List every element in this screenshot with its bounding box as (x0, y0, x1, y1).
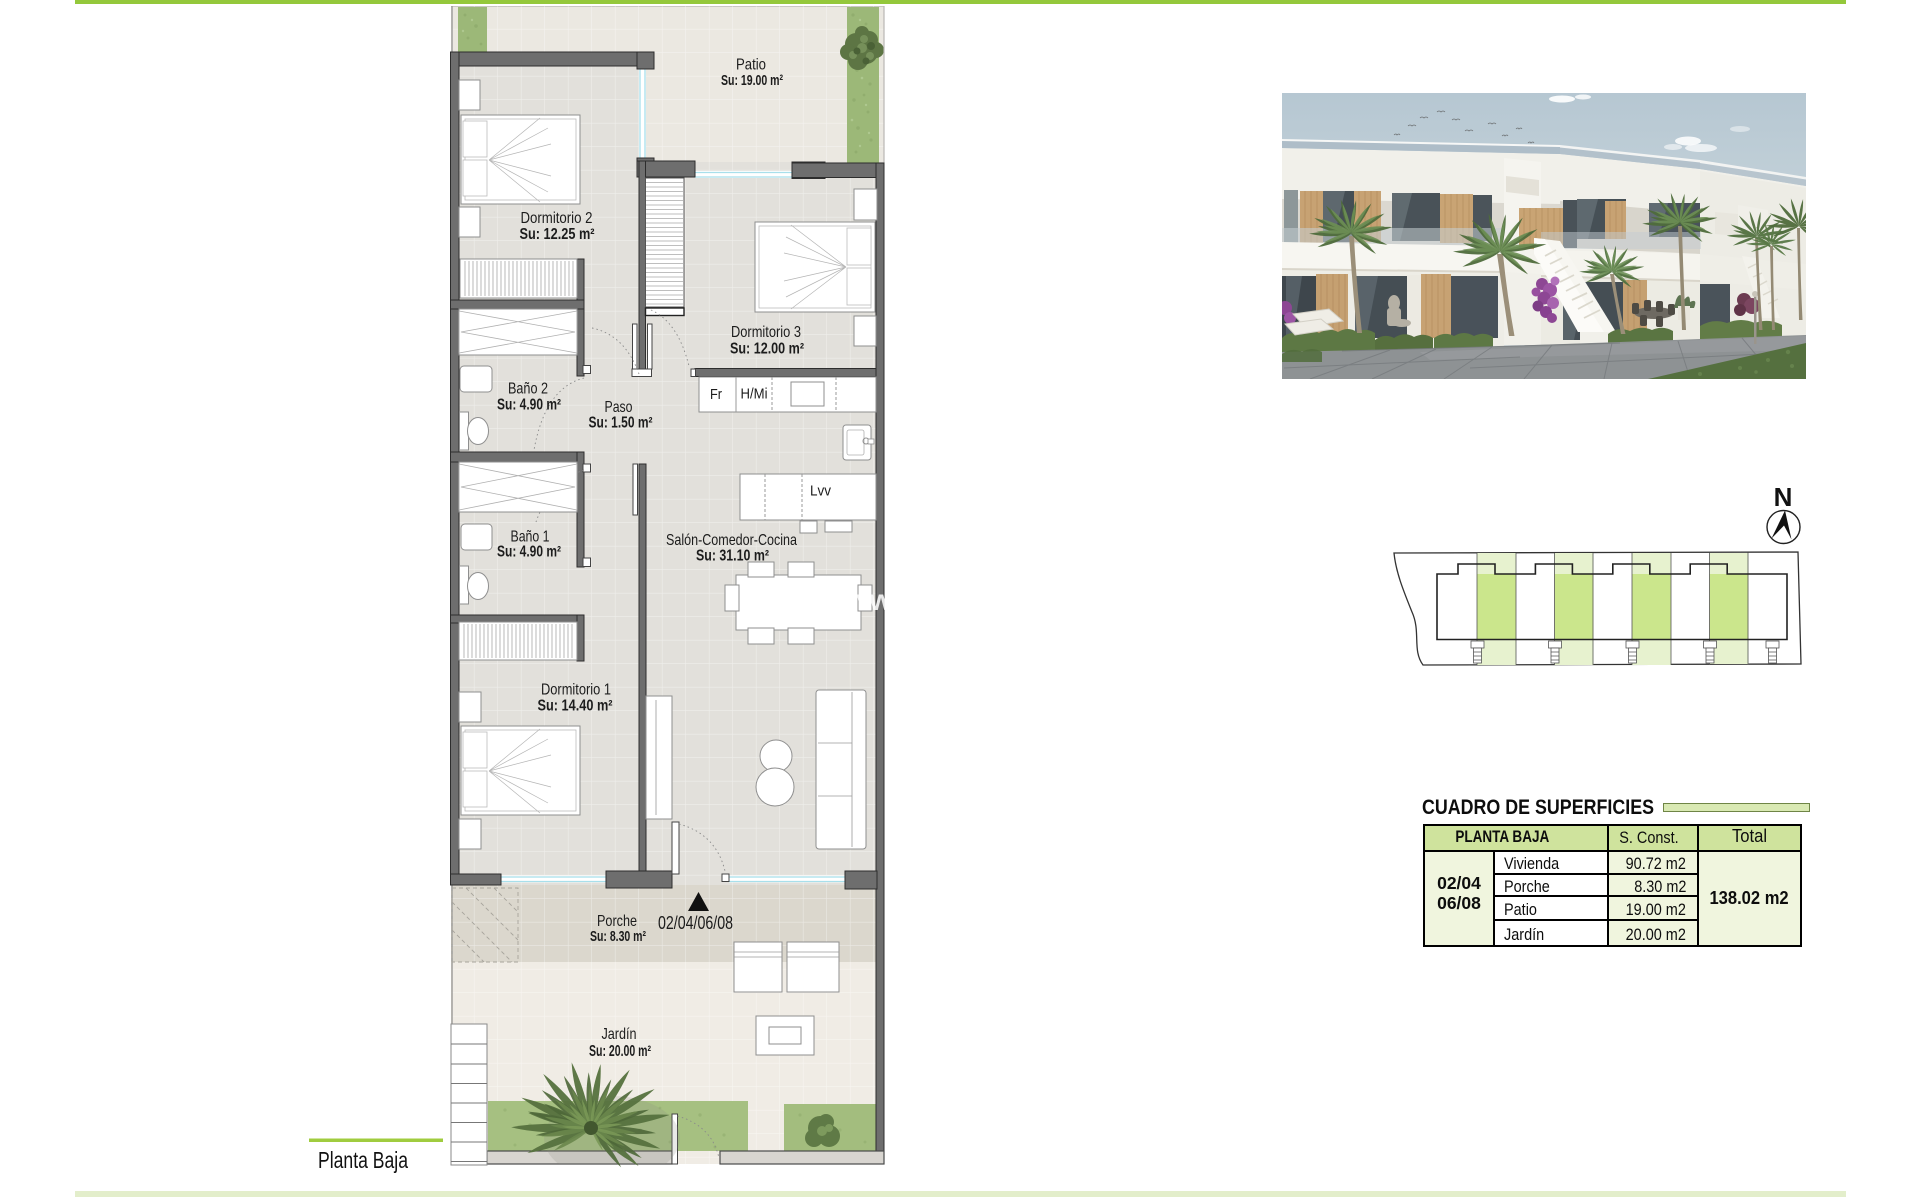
svg-text:Dormitorio 1: Dormitorio 1 (541, 682, 611, 699)
svg-text:Patio: Patio (736, 57, 766, 74)
svg-text:Su: 20.00 m²: Su: 20.00 m² (589, 1043, 651, 1060)
svg-text:Jardín: Jardín (602, 1026, 637, 1043)
svg-text:Su: 12.00 m²: Su: 12.00 m² (730, 341, 804, 358)
svg-text:Su: 19.00 m²: Su: 19.00 m² (721, 72, 783, 89)
svg-text:Su: 12.25 m²: Su: 12.25 m² (520, 226, 595, 243)
svg-text:H/Mi: H/Mi (741, 386, 768, 403)
svg-text:Su: 31.10 m²: Su: 31.10 m² (696, 548, 769, 565)
svg-text:Su: 14.40 m²: Su: 14.40 m² (538, 698, 613, 715)
svg-text:Planta Baja: Planta Baja (318, 1147, 408, 1173)
svg-text:Su: 4.90 m²: Su: 4.90 m² (497, 544, 561, 561)
svg-text:Paso: Paso (605, 399, 633, 416)
svg-text:Dormitorio 3: Dormitorio 3 (731, 324, 801, 341)
svg-text:Baño 2: Baño 2 (508, 381, 548, 398)
svg-text:www: www (845, 584, 917, 617)
svg-text:Su: 8.30 m²: Su: 8.30 m² (590, 929, 646, 945)
svg-text:Su: 1.50 m²: Su: 1.50 m² (589, 415, 653, 432)
svg-text:02/04/06/08: 02/04/06/08 (658, 912, 733, 933)
svg-text:N: N (1774, 482, 1793, 512)
svg-text:Su: 4.90 m²: Su: 4.90 m² (497, 397, 561, 414)
svg-text:Fr: Fr (710, 386, 722, 403)
svg-text:Salón-Comedor-Cocina: Salón-Comedor-Cocina (666, 532, 797, 549)
svg-text:Dormitorio 2: Dormitorio 2 (521, 210, 593, 227)
svg-text:Lvv: Lvv (810, 483, 831, 500)
svg-text:Porche: Porche (597, 913, 637, 930)
